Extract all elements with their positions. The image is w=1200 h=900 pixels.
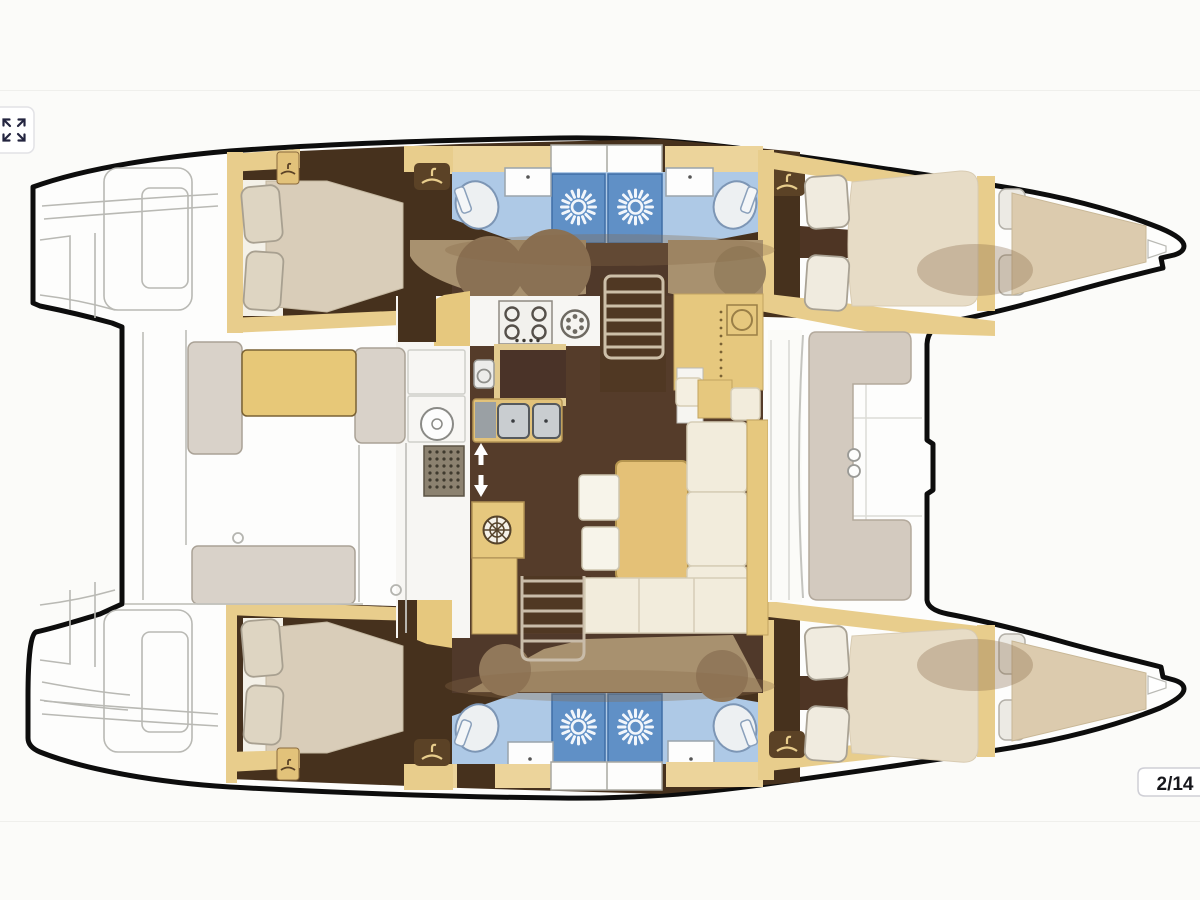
svg-text:2/14: 2/14 xyxy=(1157,774,1194,795)
